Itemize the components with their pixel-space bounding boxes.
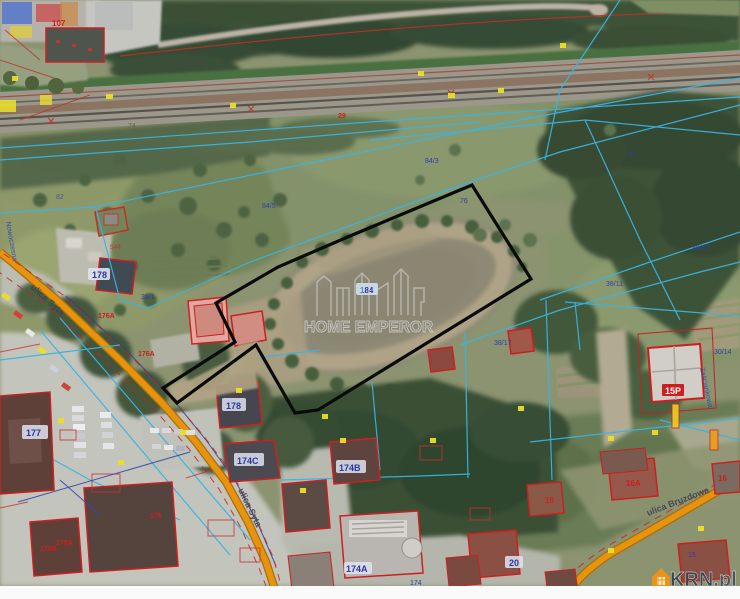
svg-text:82: 82: [56, 194, 64, 201]
svg-text:178: 178: [226, 401, 241, 411]
svg-text:178: 178: [92, 270, 107, 280]
svg-text:107: 107: [52, 19, 66, 28]
svg-text:544: 544: [110, 244, 121, 251]
svg-text:15: 15: [688, 552, 696, 559]
svg-text:174: 174: [410, 580, 422, 587]
svg-text:38/11: 38/11: [606, 281, 623, 288]
svg-text:HOME EMPEROR: HOME EMPEROR: [304, 319, 433, 336]
svg-text:74: 74: [128, 123, 136, 130]
svg-text:19: 19: [545, 496, 554, 505]
svg-text:175: 175: [150, 513, 162, 520]
svg-text:30/14: 30/14: [714, 349, 732, 356]
svg-text:29: 29: [338, 113, 346, 120]
svg-text:20: 20: [509, 558, 519, 568]
svg-text:174B: 174B: [339, 463, 361, 473]
svg-text:174A: 174A: [346, 564, 368, 574]
svg-text:176A: 176A: [138, 351, 155, 358]
svg-text:16: 16: [718, 474, 727, 483]
svg-text:84/5: 84/5: [262, 203, 276, 210]
svg-text:176A: 176A: [98, 313, 115, 320]
svg-text:16A: 16A: [626, 479, 641, 488]
svg-text:15P: 15P: [665, 386, 681, 396]
svg-text:177: 177: [26, 428, 41, 438]
svg-text:27: 27: [628, 151, 636, 158]
svg-text:84/3: 84/3: [425, 158, 439, 165]
svg-text:38/17: 38/17: [494, 340, 512, 347]
svg-text:175A: 175A: [56, 540, 73, 547]
svg-text:76: 76: [460, 198, 468, 205]
svg-text:174C: 174C: [237, 456, 259, 466]
svg-text:175B: 175B: [40, 546, 57, 553]
svg-text:38/12: 38/12: [692, 245, 710, 252]
svg-text:38/1: 38/1: [141, 294, 155, 301]
